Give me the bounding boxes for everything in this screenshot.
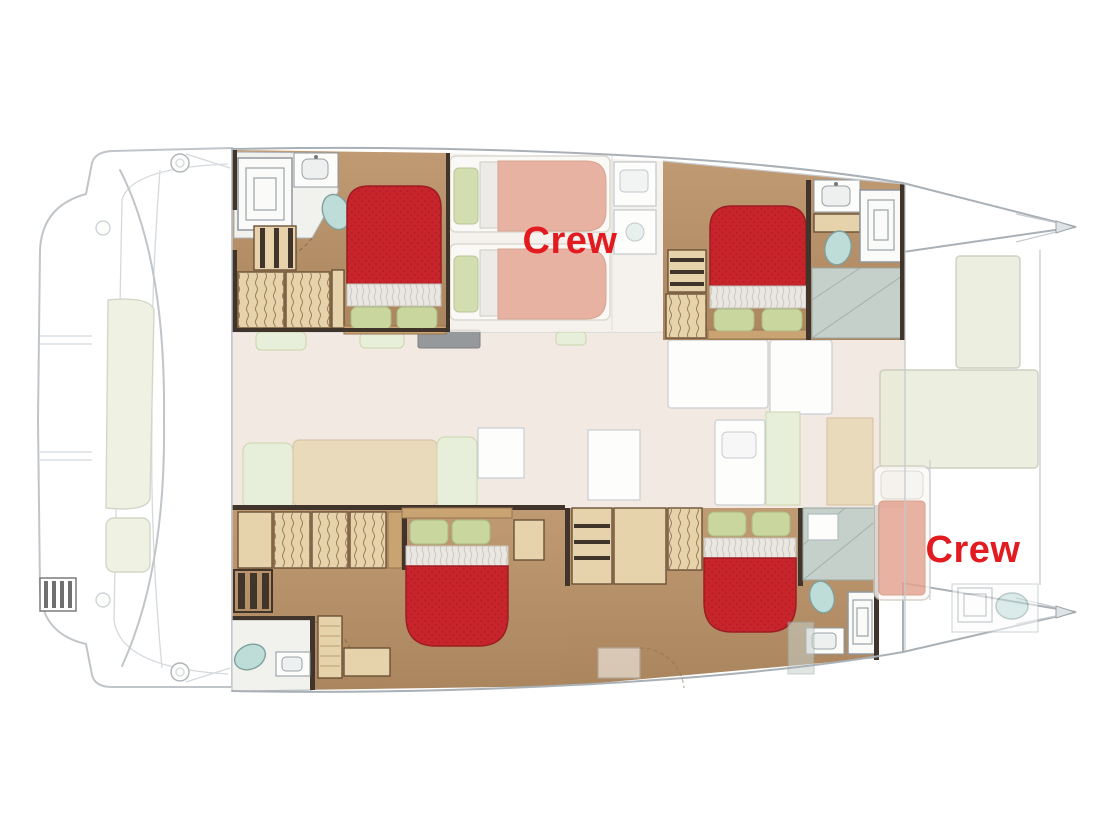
crew-cabin-forward	[874, 460, 930, 600]
companionway-steps	[234, 570, 272, 612]
port-bow-anchor-roller	[1056, 221, 1075, 233]
foredeck-sunpad-lower	[880, 370, 1038, 468]
port-forward-shelf-unit	[668, 250, 706, 292]
crew-head-sink-bowl	[620, 170, 648, 192]
port-aft-shelf-unit	[254, 226, 296, 270]
partition	[310, 616, 315, 690]
aft-cockpit-deck	[38, 148, 232, 687]
starboard-forward-shower	[848, 592, 877, 654]
partition	[798, 508, 803, 586]
starboard-aft-bench	[344, 648, 390, 676]
deck-plan-drawing: Crew Crew	[0, 0, 1114, 835]
saloon-main-deck	[232, 330, 905, 509]
swim-ladder	[40, 578, 76, 611]
starboard-aft-bed-spread	[406, 566, 508, 646]
cockpit-bench-cushion	[106, 299, 154, 509]
port-forward-cabin	[663, 161, 905, 340]
partition	[232, 328, 450, 332]
partition	[232, 505, 565, 510]
port-aft-bed-pillow-right	[397, 307, 437, 329]
galley-counter-side	[770, 340, 832, 414]
bow-crew-bathroom	[952, 584, 1038, 632]
port-bow	[903, 183, 1076, 252]
starboard-forward-bed-spread	[704, 558, 796, 632]
helm-seat-cushion	[256, 332, 306, 350]
saloon-cabinet	[478, 428, 524, 478]
deck-fitting-lower	[96, 593, 110, 607]
port-forward-bed-pillow-left	[714, 309, 754, 331]
crew-berth-upper-sheet	[480, 162, 498, 228]
saloon-table	[293, 440, 437, 506]
starboard-forward-bed-pillow-right	[752, 512, 790, 536]
galley-fridge-unit	[766, 412, 800, 505]
galley-counter-fwd	[668, 340, 768, 408]
bow-toilet	[996, 593, 1028, 619]
starboard-forward-shelf-unit	[572, 508, 612, 584]
partition	[806, 180, 811, 340]
starboard-bow-anchor-roller	[1056, 606, 1075, 618]
starboard-aft-side-table	[514, 520, 544, 560]
foredeck-sunpad-upper	[956, 256, 1020, 368]
port-aft-bed-pillow-left	[351, 307, 391, 329]
port-forward-bed-pillow-right	[762, 309, 802, 331]
crew-head-drain	[626, 223, 644, 241]
crew-berth-lower-pillow	[454, 256, 478, 312]
crew-forward-pillow	[881, 471, 923, 499]
starboard-forward-wardrobe	[668, 508, 702, 570]
starboard-forward-bed-pillow-left	[708, 512, 746, 536]
companionway-door	[588, 430, 640, 500]
forward-seat-cushion-right	[556, 332, 586, 345]
starboard-aft-bed-headboard	[402, 508, 512, 518]
partition	[565, 508, 570, 586]
starboard-forward-dresser	[614, 508, 666, 584]
starboard-aft-wardrobes	[274, 512, 386, 568]
port-forward-vanity-shelf	[814, 214, 860, 232]
port-forward-shower	[860, 190, 902, 262]
starboard-forward-cabin	[565, 505, 879, 688]
port-forward-wardrobe	[666, 294, 706, 338]
starboard-aft-cabin	[230, 505, 565, 691]
catamaran-deck-plan: Crew Crew	[0, 0, 1114, 835]
port-forward-wet-area	[812, 268, 902, 338]
partition	[900, 184, 905, 340]
crew-berth-upper-pillow	[454, 168, 478, 224]
port-aft-shower	[238, 158, 292, 230]
port-forward-bed-spread	[710, 206, 806, 286]
saloon-sofa-left	[243, 443, 293, 509]
port-aft-sink	[294, 153, 338, 187]
starboard-aft-bed-pillow-left	[410, 520, 448, 544]
galley-sink	[722, 432, 756, 458]
port-aft-bed-spread	[347, 186, 441, 284]
deck-fitting-upper	[96, 221, 110, 235]
starboard-forward-equipment-box	[808, 514, 838, 540]
partition	[232, 150, 237, 210]
port-aft-bedside-shelf	[332, 270, 344, 328]
crew-berth-lower-sheet	[480, 250, 498, 316]
partition	[232, 616, 314, 620]
corridor-sink-console	[598, 648, 640, 678]
starboard-aft-bed-pillow-right	[452, 520, 490, 544]
crew-forward-mattress	[879, 501, 925, 595]
port-aft-cabin	[232, 150, 450, 334]
crew-label-midship: Crew	[523, 220, 618, 262]
starboard-aft-locker	[238, 512, 272, 568]
partition	[446, 153, 450, 332]
starboard-forward-wet-area	[803, 508, 877, 580]
starboard-aft-shelf	[388, 512, 402, 568]
winch-aft-starboard	[171, 663, 189, 681]
starboard-aft-sink	[276, 652, 310, 676]
saloon-sofa-right	[437, 437, 477, 509]
partition	[232, 250, 237, 332]
port-forward-sink	[814, 180, 860, 212]
port-aft-wardrobe	[238, 272, 330, 328]
winch-aft-port	[171, 154, 189, 172]
starboard-aft-stairs	[318, 616, 342, 678]
cockpit-bench-cushion-small	[106, 518, 150, 572]
crew-label-bow: Crew	[926, 529, 1021, 571]
galley-tall-cabinet	[827, 418, 873, 505]
